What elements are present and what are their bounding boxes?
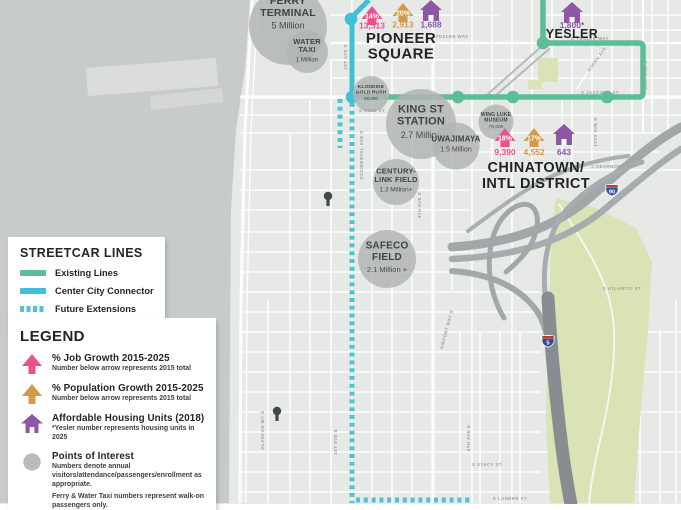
- marker-total: 4,552: [523, 147, 545, 157]
- growth-percent: 17%: [527, 136, 542, 143]
- legend-title: LEGEND: [20, 328, 206, 345]
- legend-item-label: % Job Growth 2015-2025: [52, 353, 206, 364]
- district-label-yesler: YESLER: [546, 27, 598, 41]
- district-label-chinatown-intl-district: CHINATOWN/INTL DISTRICT: [482, 160, 590, 192]
- street-label-occidental-ave-s: OCCIDENTAL AVE S: [359, 130, 364, 179]
- streetcar-legend-item-future-extensions: Future Extensions: [20, 304, 155, 314]
- legend-icon-cell: [20, 353, 44, 375]
- poi-circle-icon: [21, 452, 43, 473]
- streetcar-legend-item-existing-lines: Existing Lines: [20, 268, 155, 278]
- streetcar-lines-legend: STREETCAR LINES Existing LinesCenter Cit…: [8, 237, 165, 325]
- legend-item-subtext: Ferry & Water Taxi numbers represent wal…: [52, 493, 206, 510]
- poi-value: 85,000: [364, 96, 378, 101]
- poi-century-link-field: CENTURY-LINK FIELD1.3 Million+: [373, 159, 419, 205]
- poi-safeco-field: SAFECOFIELD2.1 Million +: [358, 230, 416, 288]
- affordable-housing-house-icon: [21, 414, 43, 435]
- legend-item-subtext: *Yesler number represents housing units …: [52, 425, 206, 443]
- street-label-12th-ave-s: 12TH AVE S: [593, 117, 598, 146]
- street-label-s-lander-st: S LANDER ST: [493, 496, 527, 501]
- street-label-4th-ave-s: 4TH AVE S: [417, 192, 422, 218]
- poi-value: 1.5 Million: [440, 146, 472, 153]
- poi-label: GOLD RUSH: [356, 89, 387, 95]
- poi-klondike-gold-rush: KLONDIKEGOLD RUSH85,000: [353, 76, 389, 112]
- job-growth-arrow-icon: [21, 354, 43, 375]
- poi-label: KING ST: [398, 103, 444, 115]
- map-legend: LEGEND % Job Growth 2015-2025Number belo…: [8, 318, 216, 510]
- streetcar-legend-title: STREETCAR LINES: [20, 246, 155, 260]
- legend-item-label: Affordable Housing Units (2018): [52, 413, 206, 424]
- legend-item-subtext: Number below arrow represents 2015 total: [52, 395, 206, 404]
- station-dot-center-city-connector: [345, 13, 358, 26]
- legend-items: % Job Growth 2015-2025Number below arrow…: [20, 353, 206, 510]
- legend-item-affordable-housing-units-2018: Affordable Housing Units (2018)*Yesler n…: [20, 413, 206, 443]
- street-label-alaskan-wy-s: ALASKAN WY S: [260, 410, 265, 449]
- street-label-s-dearborn-st: S DEARBORN ST: [591, 164, 633, 169]
- solid-green-swatch: [20, 270, 46, 276]
- poi-water-taxi: WATERTAXI1 Million: [286, 31, 328, 73]
- population-growth-arrow-icon: [21, 384, 43, 405]
- growth-percent: 20%: [396, 11, 411, 18]
- streetcar-legend-label: Future Extensions: [55, 304, 136, 314]
- poi-label: KLONDIKE: [358, 84, 385, 90]
- legend-icon-cell: [20, 383, 44, 405]
- marker-total: 9,390: [494, 147, 516, 157]
- shield-number: 90: [609, 190, 615, 196]
- poi-label: MUSEUM: [484, 117, 507, 123]
- station-dot-existing: [452, 91, 465, 104]
- street-label-s-jackson-st: S JACKSON ST: [581, 90, 619, 95]
- marker-total: 2,913: [392, 20, 414, 30]
- legend-item-points-of-interest: Points of InterestNumbers denote annual …: [20, 451, 206, 510]
- legend-text-cell: % Job Growth 2015-2025Number below arrow…: [52, 353, 206, 374]
- poi-value: 1.3 Million+: [379, 186, 412, 193]
- marker-total: 643: [557, 147, 571, 157]
- street-label-1st-ave-s: 1ST AVE S: [333, 429, 338, 455]
- street-label-14th-ave-s: 14TH AVE S: [643, 60, 648, 89]
- marker-total: 1,688: [420, 20, 442, 30]
- street-label-s-king-st: S KING ST: [359, 108, 385, 113]
- street-label-yesler-way: YESLER WAY: [436, 34, 469, 39]
- legend-item-job-growth-2015-2025: % Job Growth 2015-2025Number below arrow…: [20, 353, 206, 375]
- legend-text-cell: Points of InterestNumbers denote annual …: [52, 451, 206, 510]
- streetcar-legend-item-center-city-connector: Center City Connector: [20, 286, 155, 296]
- street-label-6th-ave-s: 6TH AVE S: [466, 425, 471, 451]
- growth-percent: 18%: [498, 136, 513, 143]
- station-dot-existing: [507, 91, 520, 104]
- poi-label: UWAJIMAYA: [431, 135, 480, 144]
- poi-value: 70,000: [489, 124, 504, 130]
- street-label-s-atlantic-st: S ATLANTIC ST: [603, 286, 641, 291]
- growth-percent: 14%: [365, 14, 380, 21]
- street-label-s-stacy-st: S STACY ST: [472, 462, 502, 467]
- poi-label: TERMINAL: [260, 7, 316, 19]
- poi-value: 2.1 Million +: [367, 265, 408, 274]
- city-map-page: FERRYTERMINAL5 MillionWATERTAXI1 Million…: [0, 0, 681, 510]
- district-label-line: PIONEER: [366, 30, 436, 47]
- legend-item-population-growth-2015-2025: % Population Growth 2015-2025Number belo…: [20, 383, 206, 405]
- dashed-cyan-swatch: [20, 306, 46, 312]
- poi-label: LINK FIELD: [374, 175, 418, 184]
- legend-item-subtext: Number below arrow represents 2015 total: [52, 365, 206, 374]
- poi-value: 1 Million: [296, 58, 318, 64]
- house-door: [562, 139, 567, 145]
- poi-label: STATION: [397, 116, 445, 128]
- district-label-pioneer-square: PIONEERSQUARE: [366, 30, 436, 63]
- streetcar-legend-label: Existing Lines: [55, 268, 118, 278]
- district-label-line: YESLER: [546, 27, 598, 41]
- district-label-line: SQUARE: [368, 46, 435, 63]
- poi-label: FIELD: [372, 252, 402, 263]
- legend-text-cell: % Population Growth 2015-2025Number belo…: [52, 383, 206, 404]
- district-label-line: CHINATOWN/: [488, 160, 585, 176]
- legend-item-label: % Population Growth 2015-2025: [52, 383, 206, 394]
- poi-value: 5 Million: [271, 21, 304, 31]
- marker-total: 13,513: [359, 21, 385, 31]
- legend-item-label: Points of Interest: [52, 451, 206, 462]
- streetcar-legend-label: Center City Connector: [55, 286, 154, 296]
- legend-icon-cell: [20, 413, 44, 435]
- legend-item-subtext: Numbers denote annual visitors/attendanc…: [52, 463, 206, 490]
- district-label-line: INTL DISTRICT: [482, 176, 590, 192]
- streetcar-legend-items: Existing LinesCenter City ConnectorFutur…: [20, 268, 155, 314]
- poi-label: TAXI: [298, 45, 315, 54]
- solid-cyan-swatch: [20, 288, 46, 294]
- poi-label: SAFECO: [366, 241, 409, 252]
- legend-icon-cell: [20, 451, 44, 473]
- legend-text-cell: Affordable Housing Units (2018)*Yesler n…: [52, 413, 206, 443]
- street-label-1st-ave-s: 1ST AVE S: [343, 44, 348, 70]
